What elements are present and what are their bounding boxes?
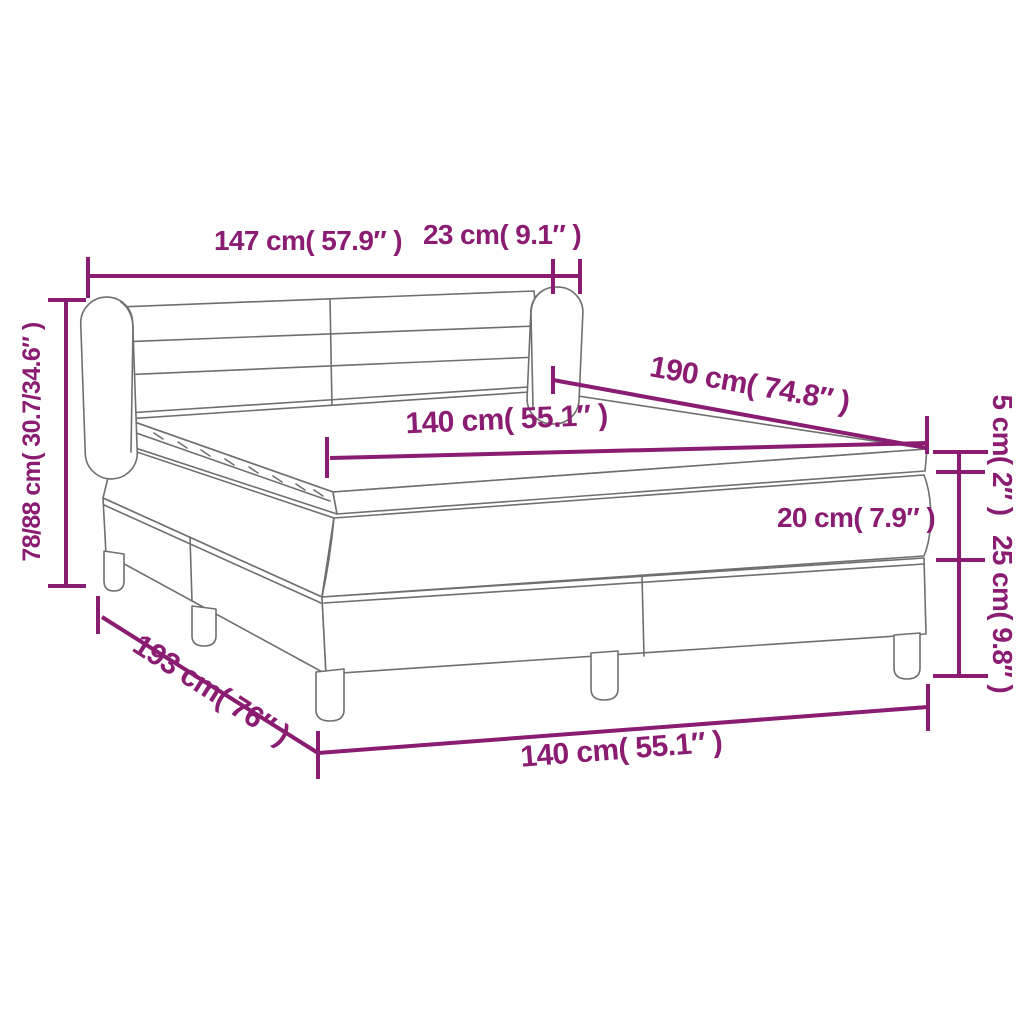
dim-mattress-height-label: 20 cm( 7.9″ ) — [777, 502, 935, 533]
dim-headboard-width-label: 147 cm( 57.9″ ) — [214, 225, 402, 256]
dim-base-width-label: 140 cm( 55.1″ ) — [519, 725, 723, 773]
dim-headboard-wing-depth-label: 23 cm( 9.1″ ) — [423, 219, 581, 250]
dim-total-height-line — [48, 300, 86, 586]
bed-leg — [104, 551, 124, 591]
dim-base-height-label: 25 cm( 9.8″ ) — [987, 535, 1018, 693]
dim-heights-line — [933, 452, 988, 676]
bed-leg — [591, 651, 618, 700]
headboard-left-wing — [80, 296, 138, 480]
dim-mattress-length-label: 190 cm( 74.8″ ) — [647, 350, 852, 419]
dim-total-height-label: 78/88 cm( 30.7/34.6″ ) — [18, 322, 46, 561]
bed-leg — [894, 633, 920, 679]
diagram-canvas: 147 cm( 57.9″ ) 23 cm( 9.1″ ) 78/88 cm( … — [0, 0, 1024, 1024]
dimension-diagram: 147 cm( 57.9″ ) 23 cm( 9.1″ ) 78/88 cm( … — [0, 0, 1024, 1024]
dim-base-length-label: 193 cm( 76″ ) — [127, 628, 295, 752]
bed-leg — [316, 669, 344, 721]
bed-leg — [192, 606, 216, 646]
dim-topper-height-label: 5 cm( 2″ ) — [987, 394, 1018, 515]
